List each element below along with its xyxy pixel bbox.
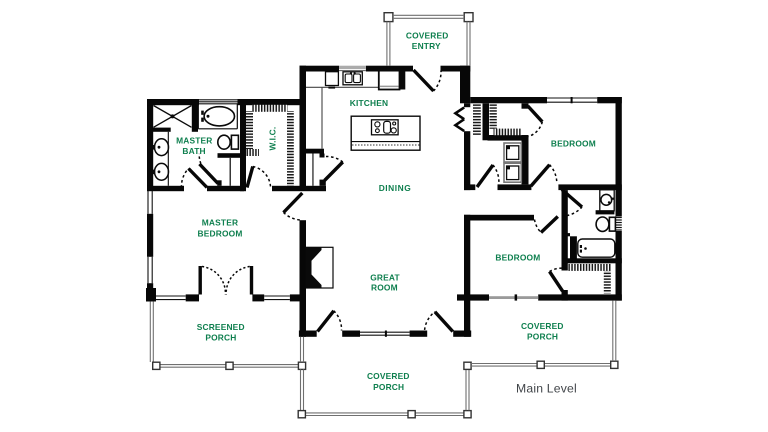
svg-text:ENTRY: ENTRY [412,41,441,51]
svg-text:KITCHEN: KITCHEN [350,98,388,108]
svg-text:COVERED: COVERED [406,30,449,40]
svg-text:BATH: BATH [182,146,205,156]
svg-text:MASTER: MASTER [176,135,212,145]
svg-text:ROOM: ROOM [371,283,398,293]
svg-text:COVERED: COVERED [521,321,564,331]
svg-text:W.I.C.: W.I.C. [268,127,278,151]
svg-text:SCREENED: SCREENED [197,322,245,332]
svg-text:PORCH: PORCH [373,382,404,392]
svg-text:MASTER: MASTER [202,218,238,228]
svg-text:BEDROOM: BEDROOM [198,228,243,238]
svg-text:PORCH: PORCH [205,332,236,342]
svg-text:GREAT: GREAT [370,272,400,282]
svg-text:BEDROOM: BEDROOM [551,139,596,149]
svg-text:DINING: DINING [379,183,412,193]
svg-text:COVERED: COVERED [367,371,410,381]
svg-text:PORCH: PORCH [527,331,558,341]
svg-text:BEDROOM: BEDROOM [495,253,540,263]
svg-text:Main Level: Main Level [516,381,577,395]
